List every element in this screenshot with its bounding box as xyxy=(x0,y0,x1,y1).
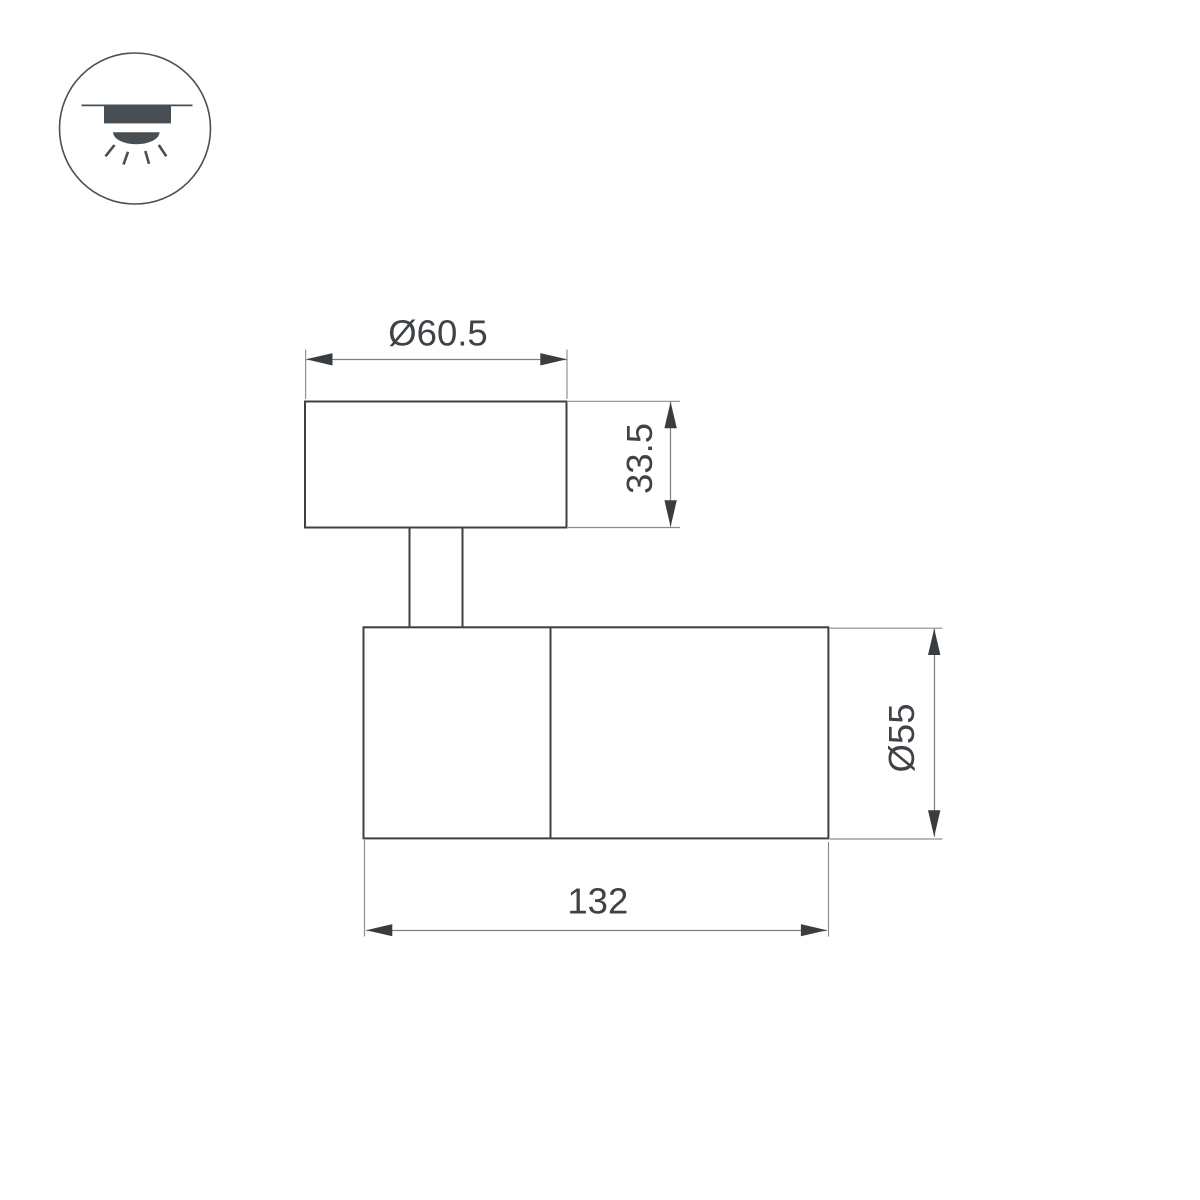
svg-text:33.5: 33.5 xyxy=(619,423,660,494)
svg-text:Ø55: Ø55 xyxy=(881,704,922,773)
svg-text:Ø60.5: Ø60.5 xyxy=(388,313,487,354)
svg-text:132: 132 xyxy=(567,881,628,922)
